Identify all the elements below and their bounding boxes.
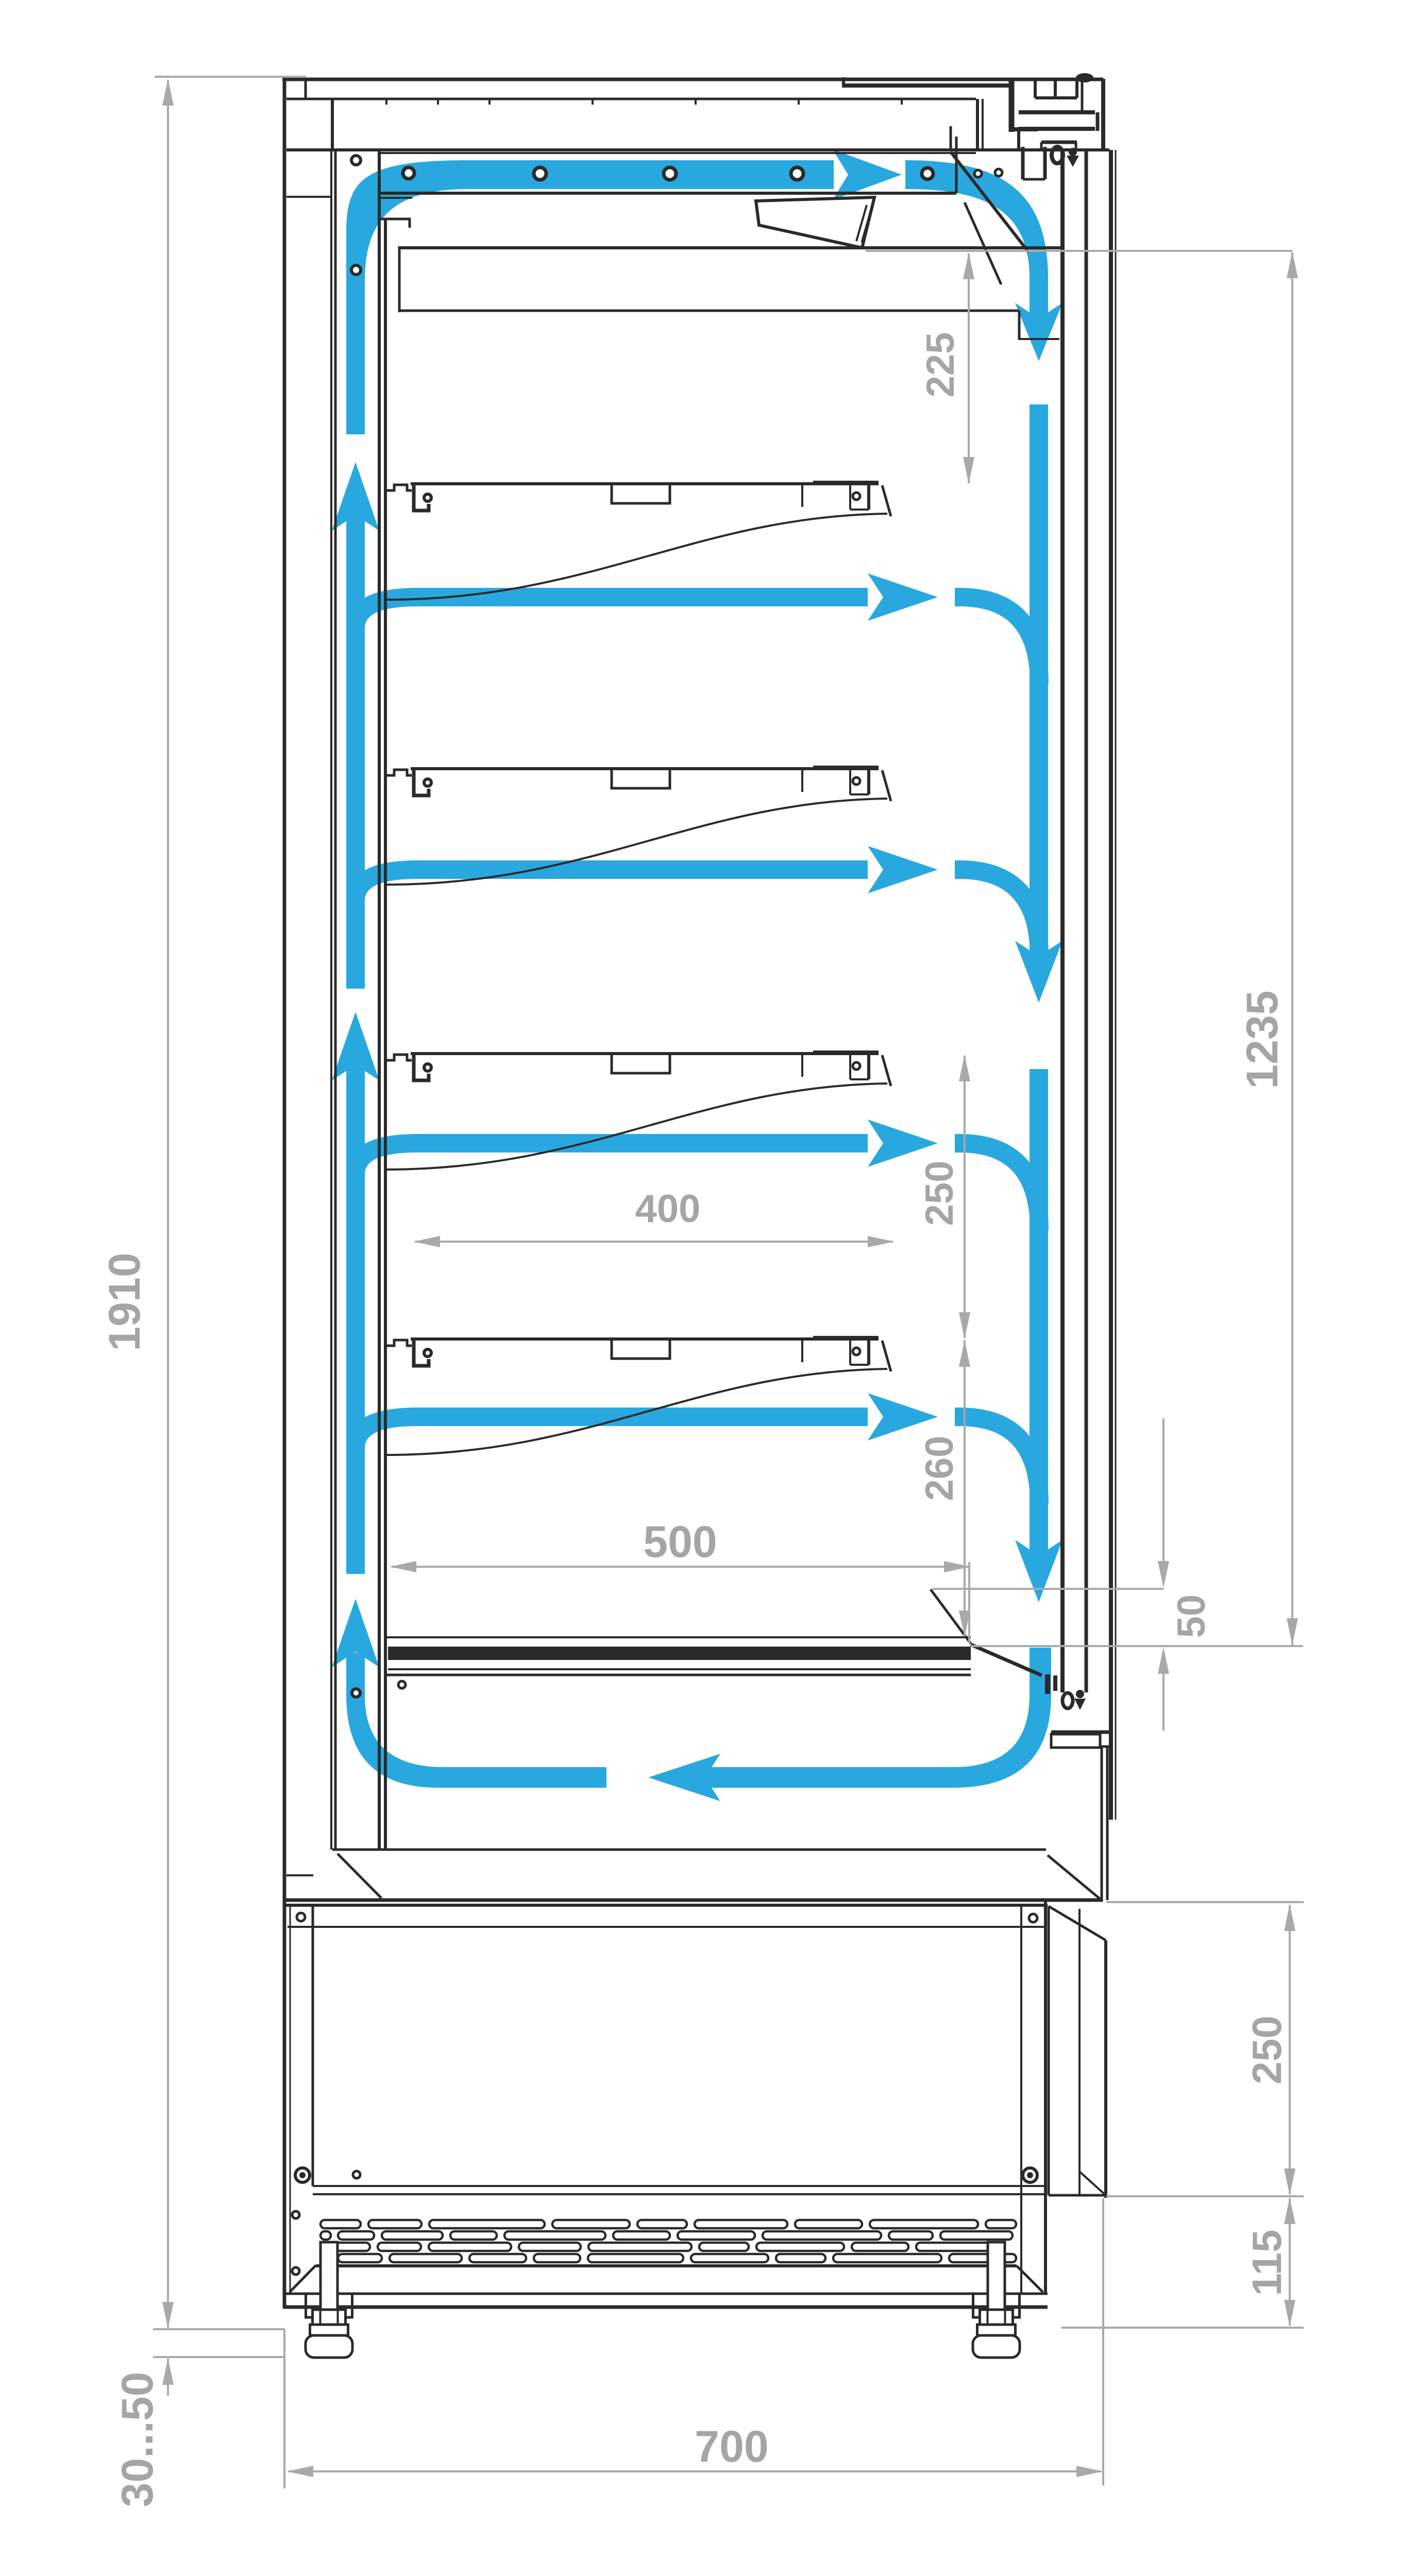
svg-text:50: 50 bbox=[1170, 1595, 1213, 1638]
svg-text:250: 250 bbox=[918, 1161, 961, 1226]
svg-text:115: 115 bbox=[1244, 2229, 1290, 2296]
svg-text:700: 700 bbox=[695, 2422, 769, 2471]
svg-text:400: 400 bbox=[635, 1187, 701, 1231]
svg-text:30...50: 30...50 bbox=[113, 2372, 162, 2507]
svg-text:500: 500 bbox=[643, 1517, 717, 1567]
svg-text:225: 225 bbox=[919, 332, 963, 398]
svg-text:1910: 1910 bbox=[100, 1252, 149, 1351]
svg-text:1235: 1235 bbox=[1238, 990, 1287, 1089]
svg-text:250: 250 bbox=[1244, 2015, 1290, 2084]
svg-text:260: 260 bbox=[918, 1436, 961, 1501]
